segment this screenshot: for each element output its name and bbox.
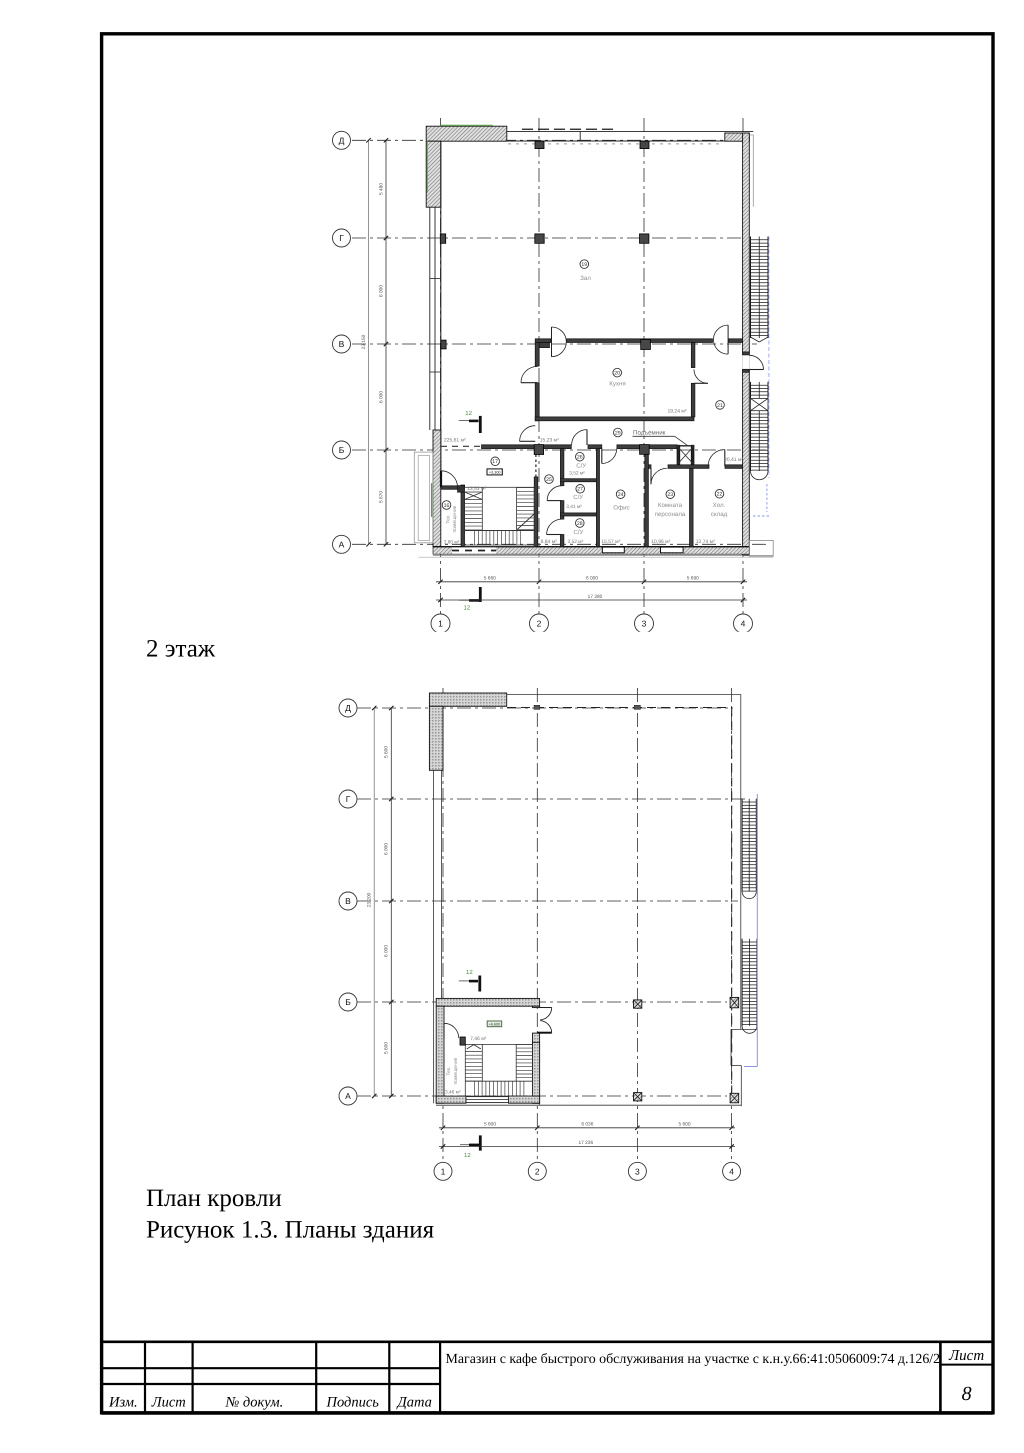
svg-text:6 000: 6 000 [378,285,384,297]
svg-text:6 000: 6 000 [378,391,384,403]
svg-text:23: 23 [667,492,673,498]
svg-text:4: 4 [729,1166,734,1176]
svg-text:3,46 м²: 3,46 м² [445,1089,461,1095]
svg-text:26: 26 [577,455,583,461]
svg-text:23 200: 23 200 [367,892,373,907]
svg-text:8: 8 [962,1383,972,1405]
svg-text:№ докум.: № докум. [225,1395,284,1411]
svg-text:15,23 м²: 15,23 м² [540,438,559,444]
svg-text:3,41 м²: 3,41 м² [566,504,582,510]
svg-text:А: А [339,539,345,549]
svg-text:Г: Г [339,233,344,243]
svg-text:5 670: 5 670 [378,491,384,503]
svg-text:Б: Б [345,997,351,1007]
svg-text:+6,600: +6,600 [489,1023,501,1027]
svg-text:25: 25 [546,477,552,483]
svg-text:1: 1 [438,619,443,629]
svg-text:Офис: Офис [613,505,629,512]
svg-text:План кровли: План кровли [146,1185,282,1212]
svg-text:24: 24 [618,492,624,498]
svg-text:2: 2 [535,1166,540,1176]
svg-text:С/У: С/У [576,463,586,470]
svg-text:20: 20 [614,371,620,377]
svg-text:В: В [339,339,345,349]
svg-text:17 236: 17 236 [578,1140,593,1146]
svg-text:Д: Д [339,135,345,145]
svg-text:29: 29 [615,430,621,436]
svg-text:6 000: 6 000 [384,945,390,957]
svg-text:помещение: помещение [453,1057,459,1084]
svg-text:12: 12 [464,605,471,612]
svg-text:17: 17 [492,459,498,465]
svg-text:Тех.: Тех. [446,1066,452,1075]
svg-text:10,96 м²: 10,96 м² [651,539,670,545]
svg-text:Лист: Лист [948,1348,984,1364]
svg-text:7,46 м²: 7,46 м² [470,1036,487,1042]
svg-text:Магазин с кафе быстрого обслуж: Магазин с кафе быстрого обслуживания на … [446,1352,941,1367]
svg-text:С/У: С/У [573,529,583,536]
svg-text:6 036: 6 036 [581,1122,593,1128]
svg-text:12,74 м²: 12,74 м² [696,539,715,545]
svg-text:Зал: Зал [580,275,591,282]
svg-text:1: 1 [441,1166,446,1176]
svg-text:Дата: Дата [396,1395,432,1411]
svg-text:13,53 м²: 13,53 м² [467,486,486,492]
svg-text:склад: склад [711,511,728,518]
svg-text:5 600: 5 600 [384,1042,390,1054]
svg-text:Д: Д [345,703,351,713]
svg-text:5 660: 5 660 [484,576,496,582]
svg-text:28: 28 [577,521,583,527]
svg-text:4: 4 [741,619,746,629]
svg-text:12: 12 [466,969,473,976]
svg-text:12: 12 [464,1152,471,1159]
svg-text:помещение: помещение [452,505,458,532]
svg-text:Рисунок 1.3. Планы здания: Рисунок 1.3. Планы здания [146,1216,435,1243]
svg-text:Кухня: Кухня [609,380,626,387]
svg-text:225,61 м²: 225,61 м² [444,437,466,443]
svg-text:Комната: Комната [658,502,683,509]
svg-text:5 690: 5 690 [687,576,699,582]
svg-text:2: 2 [537,619,542,629]
svg-text:Изм.: Изм. [108,1395,138,1411]
svg-text:Хол.: Хол. [713,502,726,509]
svg-text:22: 22 [717,492,723,498]
svg-text:Подъемник: Подъемник [633,430,666,437]
svg-text:5 600: 5 600 [678,1122,690,1128]
svg-text:А: А [345,1091,351,1101]
svg-text:С/У: С/У [573,494,583,501]
svg-text:3,52 м²: 3,52 м² [569,470,585,476]
svg-text:19,24 м²: 19,24 м² [667,408,686,414]
svg-text:Б: Б [339,445,345,455]
svg-text:Г: Г [346,794,351,804]
svg-text:27: 27 [577,487,583,493]
svg-text:3: 3 [635,1166,640,1176]
svg-text:3: 3 [642,619,647,629]
svg-text:20,41 м²: 20,41 м² [724,457,743,463]
svg-text:персонала: персонала [655,511,686,518]
svg-text:12: 12 [465,410,472,417]
svg-text:2 этаж: 2 этаж [146,635,216,662]
svg-text:15,57 м²: 15,57 м² [601,539,620,545]
svg-text:17 280: 17 280 [588,594,603,600]
svg-text:3,80 м²: 3,80 м² [444,540,460,546]
svg-text:В: В [345,896,351,906]
svg-text:8,84 м²: 8,84 м² [541,539,558,545]
svg-text:5 600: 5 600 [384,746,390,758]
svg-text:3,52 м²: 3,52 м² [568,539,584,545]
svg-text:21: 21 [717,403,723,409]
svg-text:23 150: 23 150 [361,334,367,349]
svg-text:19: 19 [581,262,587,268]
svg-text:Тех.: Тех. [446,514,452,523]
svg-text:Лист: Лист [151,1395,186,1411]
svg-text:5 480: 5 480 [378,183,384,195]
svg-text:6 000: 6 000 [384,843,390,855]
svg-text:16: 16 [444,503,450,509]
svg-text:+3,300: +3,300 [489,471,501,475]
svg-text:5 600: 5 600 [484,1122,496,1128]
svg-text:Подпись: Подпись [325,1395,379,1411]
svg-text:6 000: 6 000 [586,576,598,582]
